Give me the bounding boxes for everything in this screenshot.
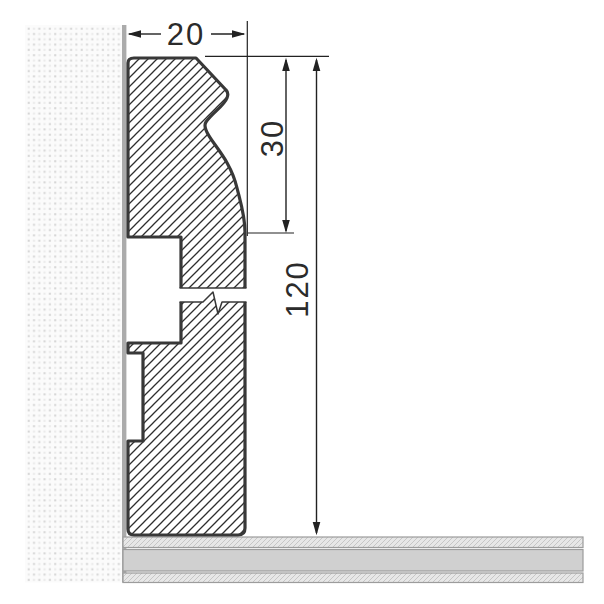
floor-middle-layer — [123, 550, 583, 572]
floor-bottom-layer — [123, 573, 583, 583]
floor-top-layer — [123, 537, 583, 548]
arrow-right-icon — [232, 30, 246, 38]
wall-edge-line — [122, 25, 126, 583]
skirting-profile — [128, 58, 247, 535]
dimension-width: 20 — [128, 17, 246, 52]
arrow-up-icon — [313, 58, 321, 71]
dimension-total-height-label: 120 — [280, 260, 315, 318]
wall-section — [25, 25, 126, 583]
arrow-down-icon — [282, 220, 290, 233]
floor-section — [123, 537, 583, 583]
dimension-upper-height-label: 30 — [255, 119, 290, 157]
arrow-up-icon — [282, 58, 290, 71]
technical-drawing: 20 30 120 — [0, 0, 604, 604]
wall-stipple-area — [25, 25, 123, 583]
profile-lower-body — [128, 292, 245, 535]
arrow-left-icon — [128, 30, 142, 38]
arrow-down-icon — [313, 522, 321, 535]
dimension-upper-height: 30 — [255, 58, 290, 233]
technical-drawing-page: 20 30 120 — [0, 0, 604, 604]
dimension-width-label: 20 — [167, 17, 205, 52]
